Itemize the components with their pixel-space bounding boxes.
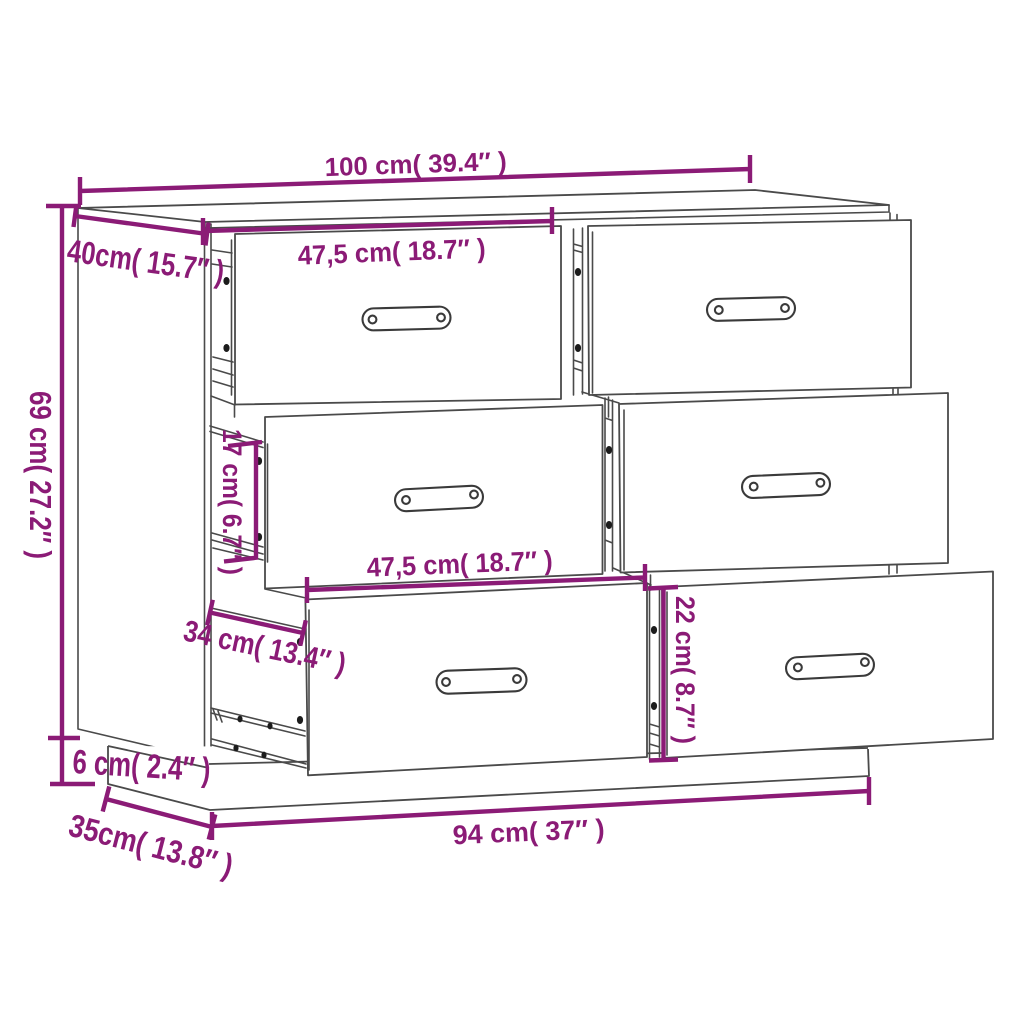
svg-text:100 cm( 39.4″ ): 100 cm( 39.4″ ) [324,146,507,182]
svg-text:22 cm( 8.7″ ): 22 cm( 8.7″ ) [670,596,700,744]
svg-text:69 cm( 27.2″ ): 69 cm( 27.2″ ) [23,391,58,559]
svg-text:17 cm( 6.7″ ): 17 cm( 6.7″ ) [217,429,247,575]
